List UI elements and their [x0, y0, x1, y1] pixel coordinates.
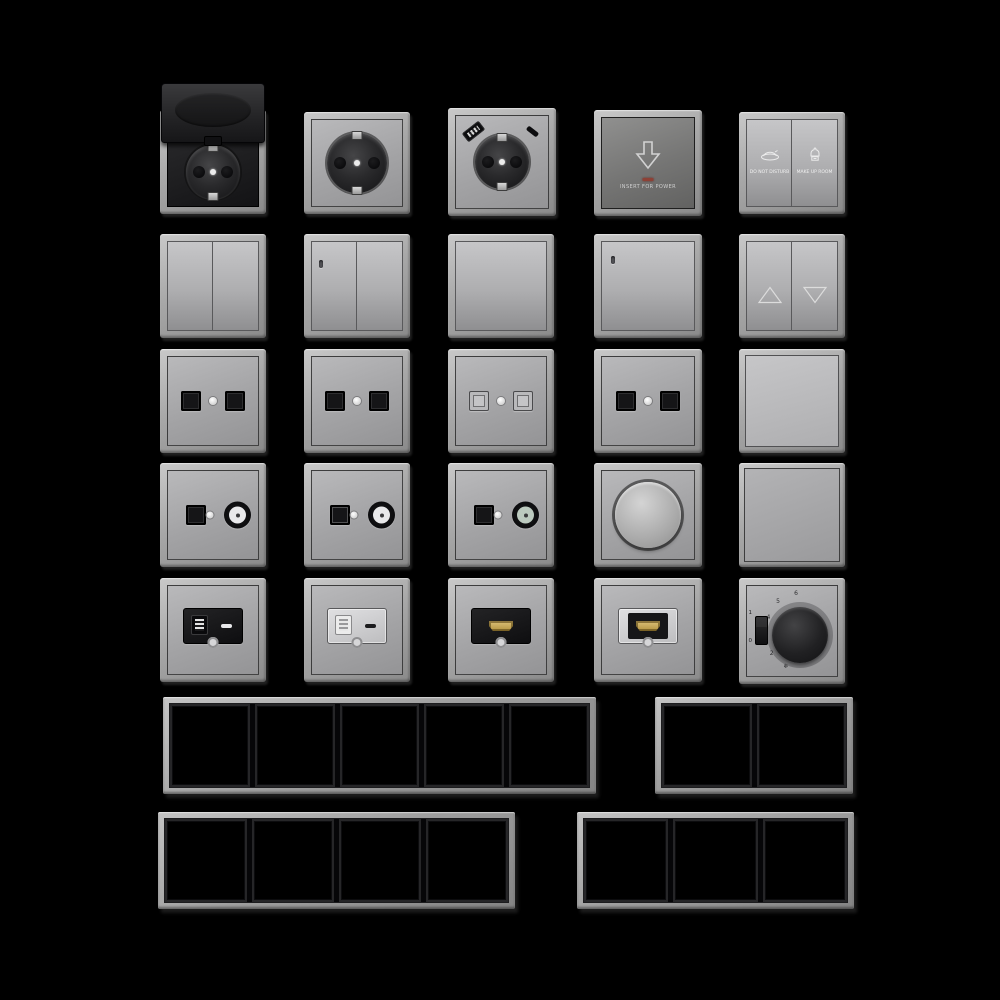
double-rocker-switch-indicator: [304, 234, 410, 338]
room-thermostat: 65432❄10: [739, 578, 845, 684]
frame-window: [339, 819, 421, 902]
frame-openings: [170, 704, 589, 787]
do-not-disturb-label: DO NOT DISTURB: [749, 170, 790, 177]
lid-groove: [175, 93, 251, 127]
switch-on-label: 1: [749, 610, 753, 616]
hdmi-module: [618, 608, 678, 644]
usb-c-port: [365, 624, 376, 628]
make-up-room-rocker: MAKE UP ROOM: [791, 119, 838, 207]
cover-frame-3-gang: [577, 812, 854, 909]
triangle-up-icon: [757, 285, 783, 305]
shuttered-data-port: [469, 391, 489, 411]
status-led: [643, 178, 654, 181]
frame-window: [252, 819, 334, 902]
center-dot: [209, 397, 217, 405]
tv-data-combo-socket-b: [304, 463, 410, 567]
rocker: [455, 241, 547, 331]
hdmi-port: [636, 621, 660, 631]
module-screw: [352, 637, 363, 648]
cover-frame-4-gang: [158, 812, 515, 909]
hdmi-port: [489, 621, 513, 631]
do-not-disturb-rocker: DO NOT DISTURB: [746, 119, 793, 207]
data-port: [325, 391, 345, 411]
usb-a-port: [336, 616, 351, 634]
frame-window: [673, 819, 757, 902]
socket-clip: [352, 186, 363, 195]
triangle-down-icon: [802, 285, 828, 305]
coax-connector: [512, 502, 539, 529]
module-screw: [208, 637, 219, 648]
center-dot: [354, 160, 360, 166]
hinged-lid-open: [161, 83, 265, 143]
shuttered-data-port: [513, 391, 533, 411]
left-rocker: [167, 241, 214, 331]
blank-cover: [739, 463, 845, 567]
module-screw: [496, 637, 507, 648]
dual-data-socket-a: [160, 349, 266, 453]
socket-clip: [497, 133, 508, 142]
frame-window: [757, 704, 847, 787]
data-port: [225, 391, 245, 411]
double-rocker-switch: [160, 234, 266, 338]
hdmi-socket-black: [448, 578, 554, 682]
center-dot: [207, 512, 214, 519]
dimmer-knob: [615, 482, 681, 548]
usb-charger-module: [183, 608, 243, 644]
frame-window: [170, 704, 250, 787]
frame-window: [340, 704, 420, 787]
center-dot: [210, 169, 216, 175]
contact-hole: [334, 157, 346, 169]
hdmi-module: [471, 608, 531, 644]
schuko-socket-usb: [448, 108, 556, 216]
coax-connector: [368, 502, 395, 529]
module-screw: [643, 637, 654, 648]
blind-down-rocker: [791, 241, 838, 331]
schuko-socket-well: [475, 135, 529, 189]
contact-hole: [193, 166, 205, 178]
thermostat-on-off-switch: [755, 616, 768, 645]
contact-hole: [368, 157, 380, 169]
tv-data-combo-socket-a: [160, 463, 266, 567]
flat-push-switch: [739, 349, 845, 453]
socket-clip: [497, 182, 508, 191]
center-dot: [351, 512, 358, 519]
dual-data-socket-b: [304, 349, 410, 453]
usb-a-port: [192, 616, 207, 634]
product-grid-scene: INSERT FOR POWERDO NOT DISTURBMAKE UP RO…: [0, 0, 1000, 1000]
make-up-room-icon: [807, 146, 822, 162]
rotary-dimmer: [594, 463, 702, 567]
frame-window: [763, 819, 847, 902]
frame-openings: [584, 819, 847, 902]
frame-window: [662, 704, 752, 787]
rocker: [601, 241, 695, 331]
switch-off-label: 0: [749, 638, 753, 644]
push-button: [745, 355, 839, 447]
data-port: [330, 505, 350, 525]
frame-window: [509, 704, 589, 787]
usb-charger-socket-black: [160, 578, 266, 682]
frame-window: [426, 819, 508, 902]
thermostat-knob: [772, 607, 828, 663]
schuko-socket-well: [186, 145, 240, 199]
schuko-socket-hinged-lid: [160, 110, 266, 214]
make-up-room-label: MAKE UP ROOM: [794, 170, 835, 177]
left-rocker: [311, 241, 358, 331]
usb-c-port: [221, 624, 232, 628]
blank-plate: [744, 468, 840, 562]
center-dot: [353, 397, 361, 405]
dual-data-socket-shuttered: [448, 349, 554, 453]
data-port: [616, 391, 636, 411]
cover-frame-2-gang: [655, 697, 853, 794]
data-port: [474, 505, 494, 525]
usb-charger-socket-silver: [304, 578, 410, 682]
thermostat-scale-mark: ❄: [784, 663, 789, 670]
thermostat-scale-mark: 6: [794, 590, 798, 597]
card-switch-caption: INSERT FOR POWER: [594, 184, 702, 190]
hotel-service-switch: DO NOT DISTURBMAKE UP ROOM: [739, 112, 845, 214]
frame-window: [584, 819, 668, 902]
center-dot: [644, 397, 652, 405]
contact-hole: [482, 156, 494, 168]
lid-hinge: [204, 136, 222, 146]
single-rocker-switch: [448, 234, 554, 338]
cover-frame-5-gang: [163, 697, 596, 794]
socket-clip: [208, 192, 219, 201]
hdmi-socket-silver: [594, 578, 702, 682]
center-dot: [497, 397, 505, 405]
contact-hole: [510, 156, 522, 168]
blind-up-rocker: [746, 241, 793, 331]
indicator-led: [611, 256, 615, 264]
frame-window: [255, 704, 335, 787]
thermostat-scale-mark: 2: [770, 650, 774, 657]
frame-window: [424, 704, 504, 787]
data-port: [186, 505, 206, 525]
schuko-socket: [304, 112, 410, 214]
frame-window: [165, 819, 247, 902]
data-port: [181, 391, 201, 411]
right-rocker: [356, 241, 403, 331]
data-port: [660, 391, 680, 411]
socket-clip: [352, 131, 363, 140]
frame-openings: [662, 704, 846, 787]
coax-connector: [224, 502, 251, 529]
schuko-socket-well: [327, 133, 387, 193]
right-rocker: [212, 241, 259, 331]
shutter-blind-switch: [739, 234, 845, 338]
indicator-led: [319, 260, 323, 268]
tv-data-combo-socket-c: [448, 463, 554, 567]
key-card-power-switch: INSERT FOR POWER: [594, 110, 702, 216]
center-dot: [495, 512, 502, 519]
center-dot: [499, 159, 505, 165]
contact-hole: [221, 166, 233, 178]
single-rocker-switch-indicator: [594, 234, 702, 338]
usb-charger-module: [327, 608, 387, 644]
data-port: [369, 391, 389, 411]
thermostat-scale-mark: 5: [776, 598, 780, 605]
arrow-down-icon: [630, 139, 666, 171]
do-not-disturb-icon: [759, 149, 781, 162]
dual-data-socket-c: [594, 349, 702, 453]
frame-openings: [165, 819, 508, 902]
